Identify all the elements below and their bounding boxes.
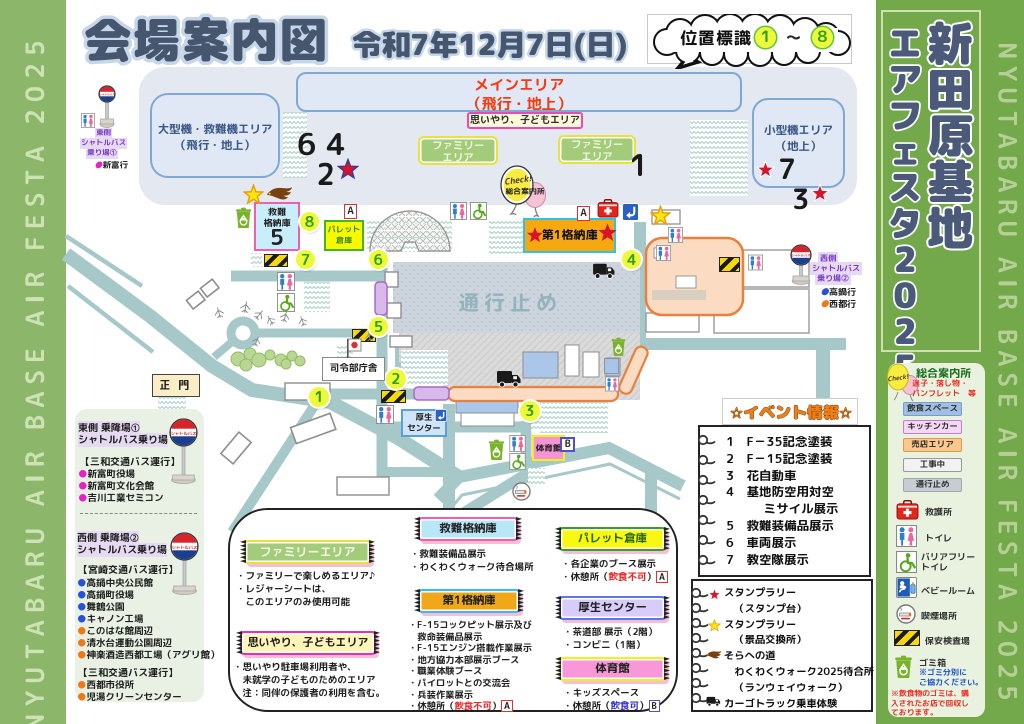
svg-text:会場案内図: 会場案内図 — [84, 10, 329, 70]
svg-text:シャトルバス: シャトルバス — [171, 431, 197, 437]
svg-text:総合案内所: 総合案内所 — [506, 187, 545, 197]
svg-text:☆イベント情報☆: ☆イベント情報☆ — [730, 402, 852, 424]
svg-text:シャトルバス: シャトルバス — [172, 545, 198, 551]
svg-text:シャトルバス: シャトルバス — [791, 254, 811, 259]
svg-text:シャトルバス: シャトルバス — [99, 92, 115, 96]
svg-text:令和7年12月7日(日): 令和7年12月7日(日) — [352, 25, 628, 65]
